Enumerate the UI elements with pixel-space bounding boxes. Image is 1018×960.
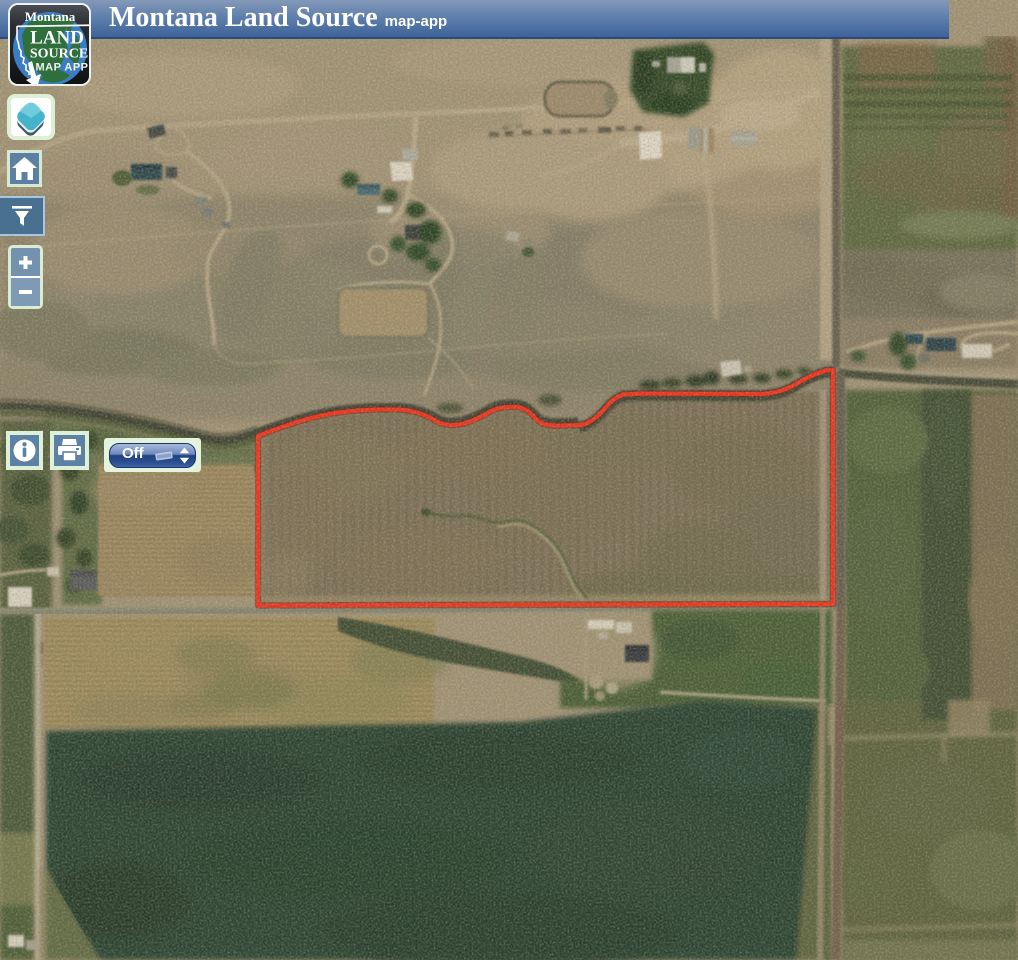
svg-text:SOURCE: SOURCE	[30, 46, 88, 61]
svg-text:MAP APP: MAP APP	[35, 62, 88, 74]
svg-text:Montana: Montana	[25, 9, 76, 24]
